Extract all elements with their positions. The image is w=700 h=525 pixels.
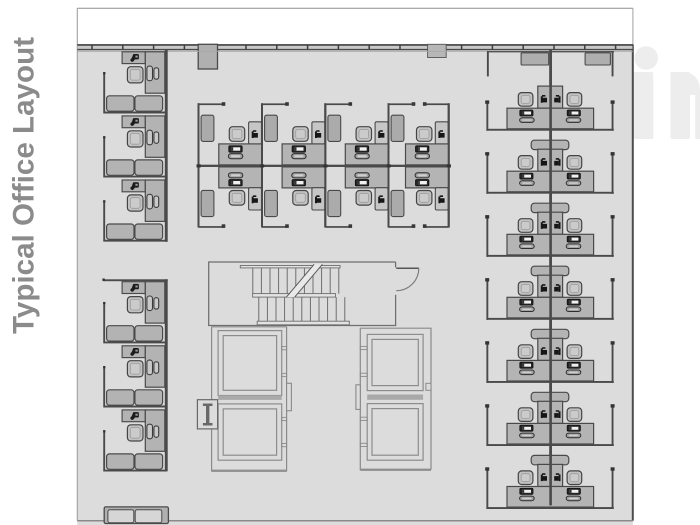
svg-text:Typical Office Layout: Typical Office Layout xyxy=(8,37,41,334)
